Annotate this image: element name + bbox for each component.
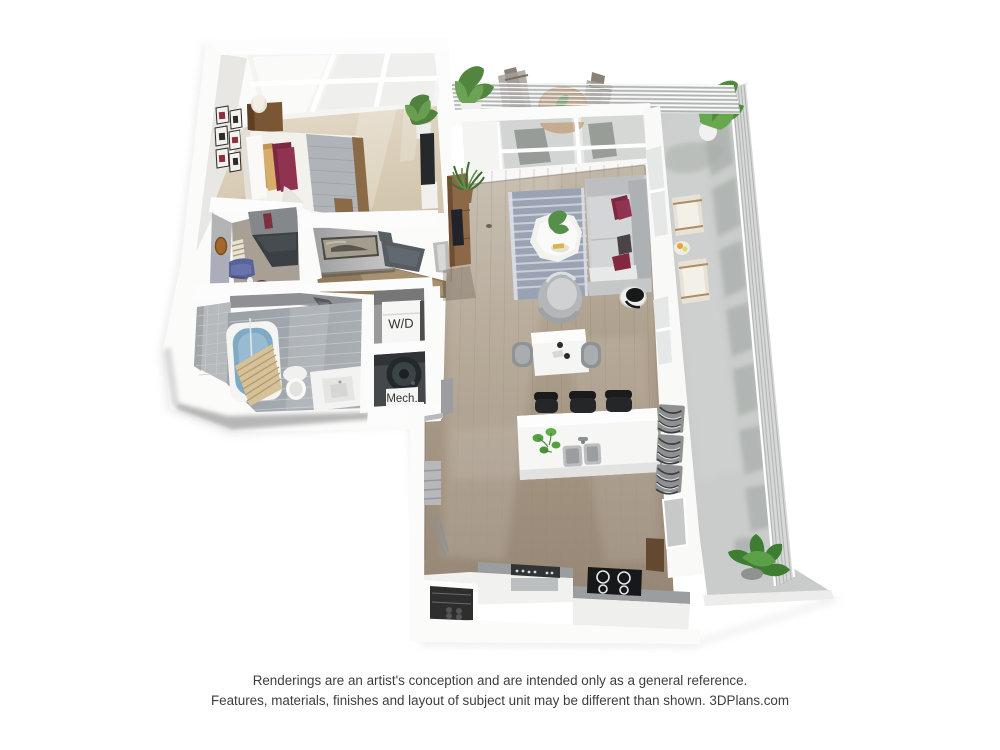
svg-text:Features, materials, finishes: Features, materials, finishes and layout… <box>211 693 789 708</box>
svg-text:Renderings are an artist's con: Renderings are an artist's conception an… <box>253 673 748 688</box>
svg-text:W/D: W/D <box>388 316 414 332</box>
